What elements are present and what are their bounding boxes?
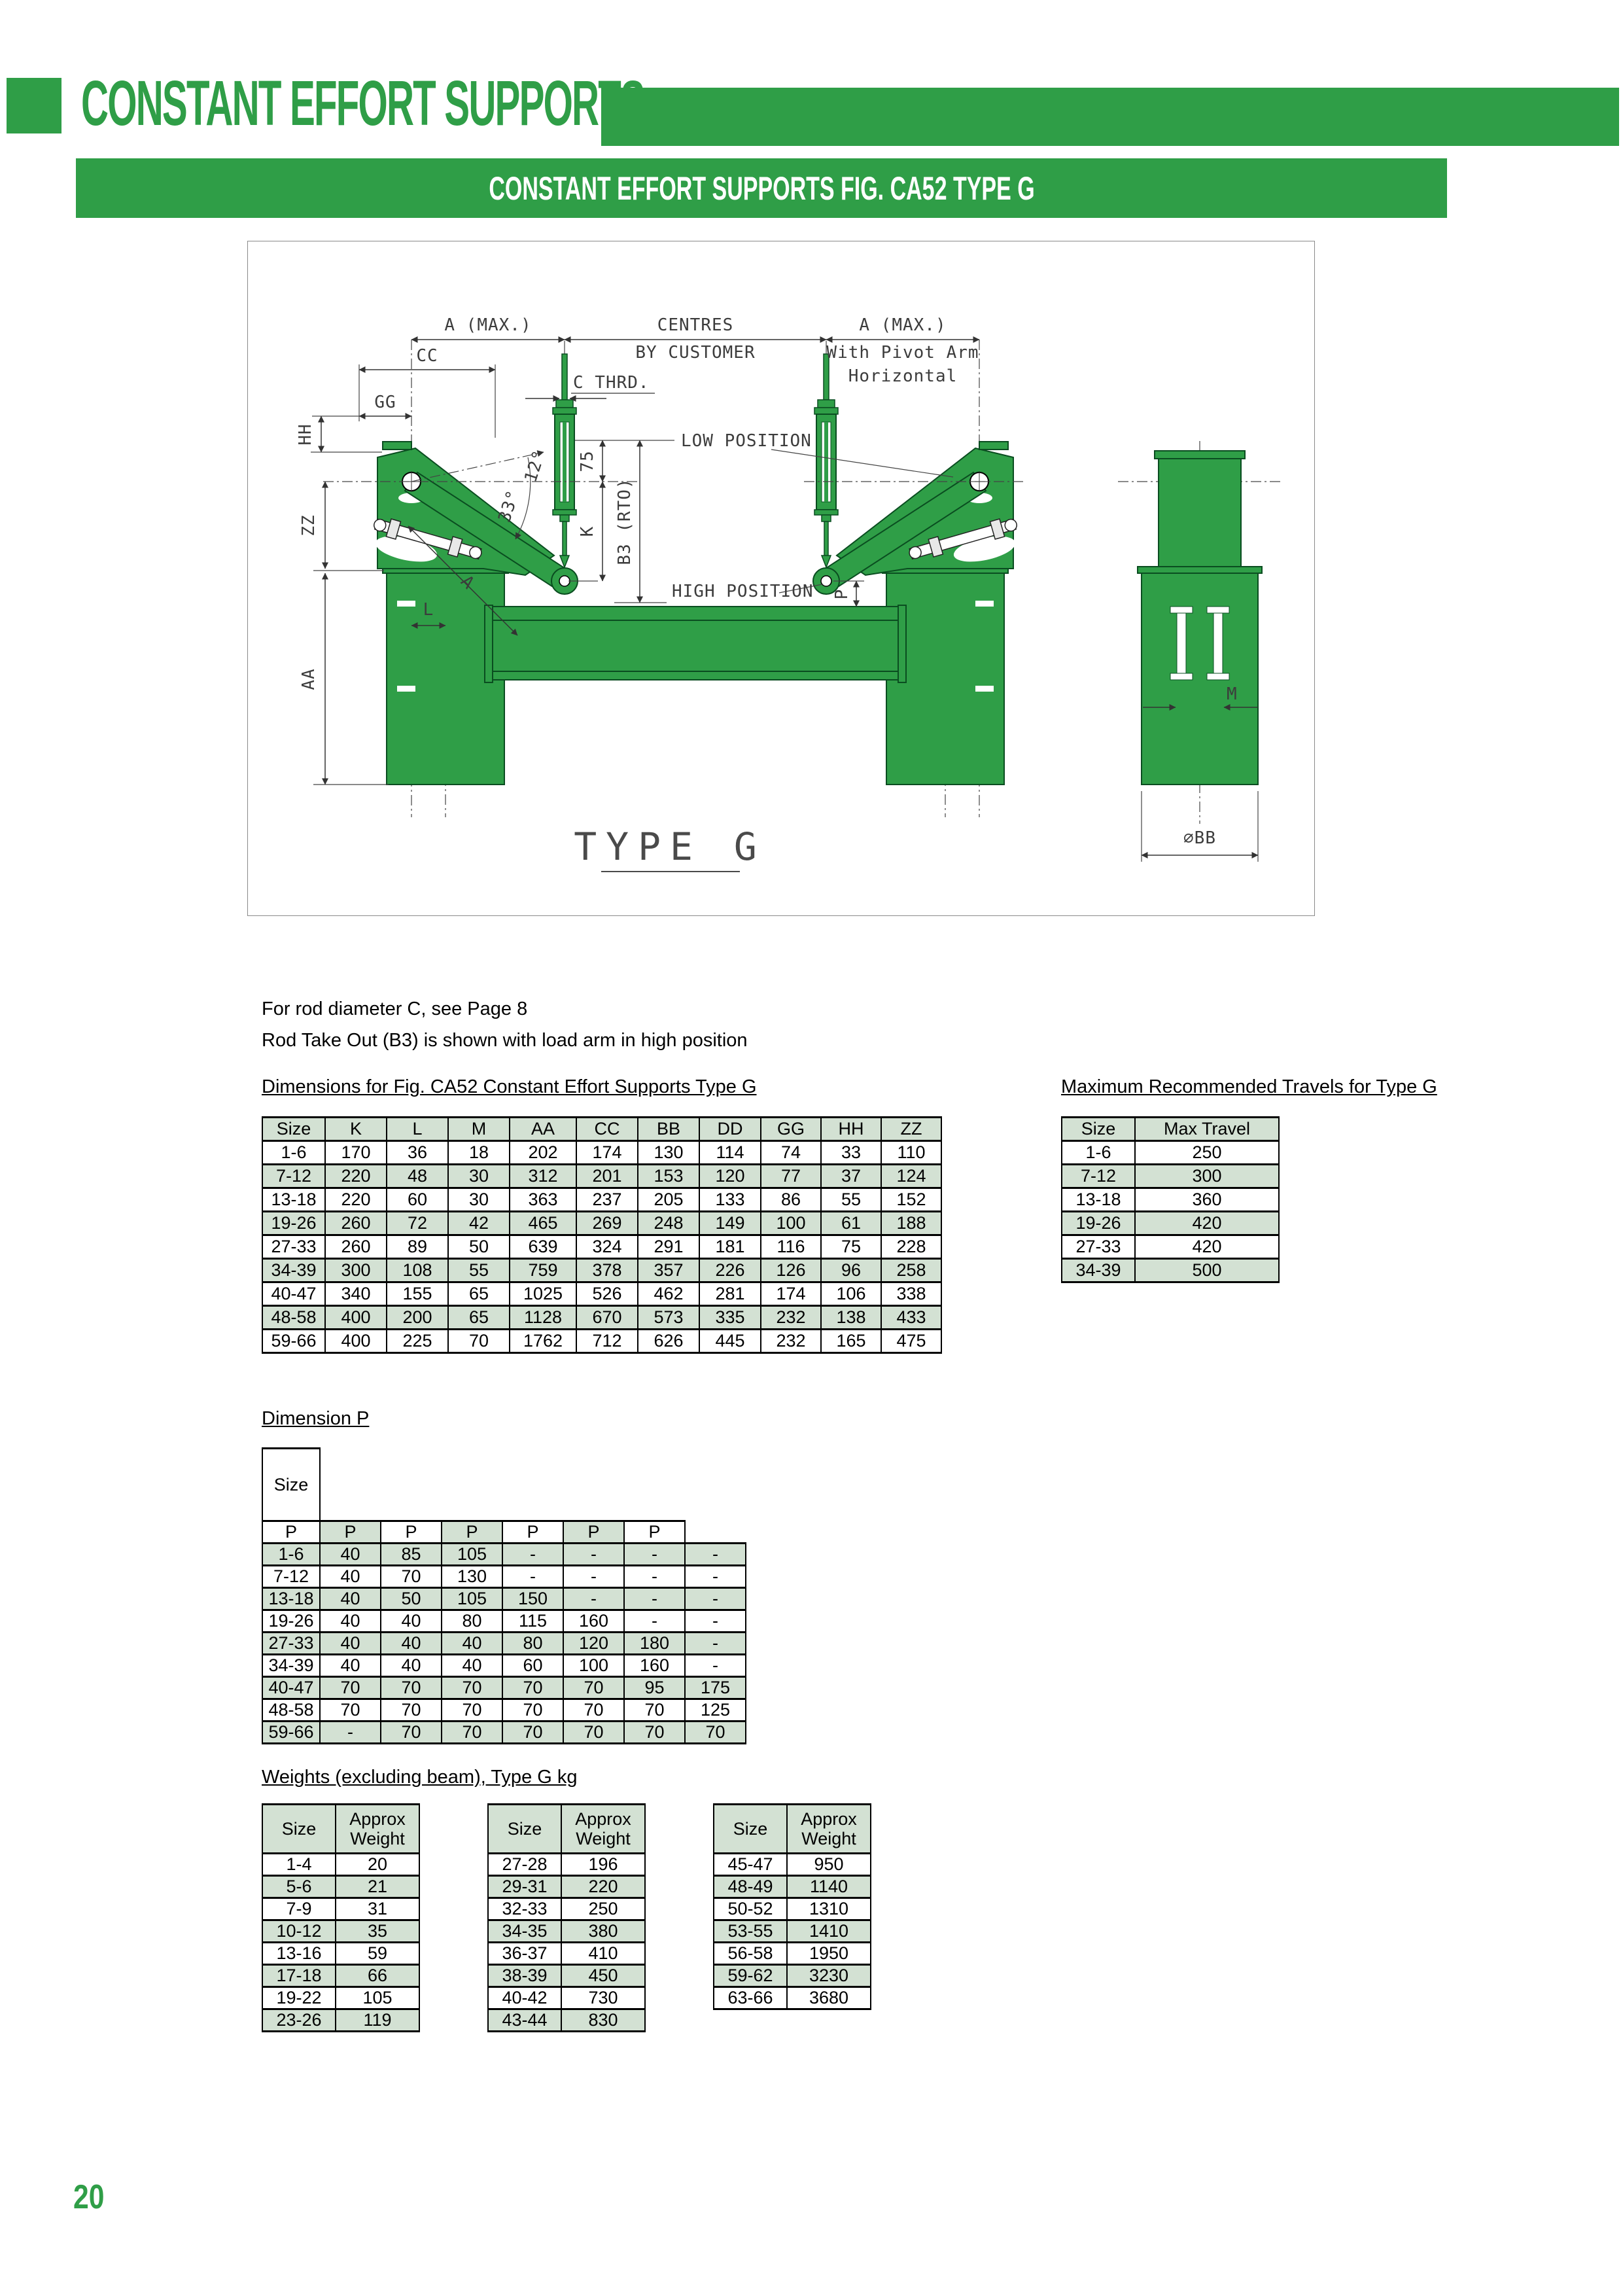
cell: 34-39 [1062, 1259, 1135, 1282]
cell: 65 [448, 1306, 510, 1330]
table-row: 34-393001085575937835722612696258 [262, 1259, 941, 1282]
catalog-page: CONSTANT EFFORT SUPPORTS CONSTANT EFFORT… [0, 0, 1623, 2296]
dim-label-pivot-arm-2: Horizontal [848, 366, 958, 386]
cell: 17-18 [262, 1965, 336, 1987]
cell: 40 [320, 1633, 381, 1655]
cell: - [624, 1544, 685, 1566]
cell: 950 [787, 1854, 871, 1876]
cell: 130 [442, 1566, 502, 1588]
column-header: GG [761, 1118, 821, 1141]
cell: 225 [387, 1330, 448, 1353]
beam-bottom-flange [493, 671, 898, 680]
cell: 202 [510, 1141, 576, 1165]
cell: 3680 [787, 1987, 871, 2009]
cell: 50 [448, 1235, 510, 1259]
cell: 61 [821, 1212, 881, 1235]
column-header: P [381, 1521, 442, 1544]
p-subheader-row: PPPPPPP [262, 1521, 746, 1544]
cell: - [502, 1544, 563, 1566]
dim-label-high-position: HIGH POSITION [672, 582, 814, 601]
dimension-p-heading: Dimension P [262, 1408, 369, 1430]
cell: 40 [320, 1588, 381, 1610]
weight-header: Approx Weight [336, 1805, 419, 1854]
cell: 33 [821, 1141, 881, 1165]
cell: 324 [576, 1235, 638, 1259]
lower-rod [563, 521, 567, 556]
cell: 433 [881, 1306, 941, 1330]
table-row: 1-64085105---- [262, 1544, 746, 1566]
table-row: 59-623230 [714, 1965, 871, 1987]
column-header: K [325, 1118, 387, 1141]
dimensions-table: SizeKLMAACCBBDDGGHHZZ 1-6170361820217413… [262, 1116, 942, 1354]
cell: 155 [387, 1282, 448, 1306]
cell: 248 [638, 1212, 699, 1235]
dim-label-bb: ∅BB [1183, 828, 1216, 848]
cell: 108 [387, 1259, 448, 1282]
cell: - [685, 1544, 746, 1566]
cell: 56-58 [714, 1943, 787, 1965]
size-header: Size [488, 1805, 561, 1854]
dim-label-c-thrd: C THRD. [573, 373, 650, 393]
cell: 19-26 [262, 1610, 320, 1633]
cell: 205 [638, 1188, 699, 1212]
cell: 85 [381, 1544, 442, 1566]
cell: 220 [325, 1188, 387, 1212]
cell: 40 [320, 1544, 381, 1566]
dim-label-low-position: LOW POSITION [681, 431, 812, 451]
cell: 48-49 [714, 1876, 787, 1898]
cell: 110 [881, 1141, 941, 1165]
cell: 72 [387, 1212, 448, 1235]
table-row: 34-35380 [488, 1920, 645, 1943]
cell: 96 [821, 1259, 881, 1282]
cell: 360 [1135, 1188, 1279, 1212]
cell: 114 [699, 1141, 761, 1165]
travels-table-heading: Maximum Recommended Travels for Type G [1061, 1076, 1437, 1098]
cell: 250 [561, 1898, 645, 1920]
cell: 40 [442, 1655, 502, 1677]
cell: 59-62 [714, 1965, 787, 1987]
dim-label-k: K [578, 526, 597, 537]
cell: 181 [699, 1235, 761, 1259]
cell: 226 [699, 1259, 761, 1282]
cell: 48-58 [262, 1306, 325, 1330]
cell: 291 [638, 1235, 699, 1259]
table-row: 27-33260895063932429118111675228 [262, 1235, 941, 1259]
cell: 40 [381, 1655, 442, 1677]
cell: - [502, 1566, 563, 1588]
cell: - [624, 1588, 685, 1610]
cell: 13-18 [262, 1588, 320, 1610]
cell: 27-33 [1062, 1235, 1135, 1259]
cell: 7-12 [262, 1566, 320, 1588]
cell: - [685, 1655, 746, 1677]
table-row: 17-1866 [262, 1965, 419, 1987]
cell: 380 [561, 1920, 645, 1943]
header-accent-bar [601, 88, 1619, 146]
column-header: AA [510, 1118, 576, 1141]
cell: 1950 [787, 1943, 871, 1965]
arm-pin-hole [559, 576, 570, 586]
cell: 100 [761, 1212, 821, 1235]
cell: 36 [387, 1141, 448, 1165]
cell: 340 [325, 1282, 387, 1306]
cell: 1-6 [1062, 1141, 1135, 1165]
cell: 21 [336, 1876, 419, 1898]
cell: 70 [381, 1699, 442, 1722]
cell: 200 [387, 1306, 448, 1330]
cell: 80 [502, 1633, 563, 1655]
table-row: 13-184050105150--- [262, 1588, 746, 1610]
column-header: Size [1062, 1118, 1135, 1141]
side-base-column [1142, 573, 1258, 785]
cell: 45-47 [714, 1854, 787, 1876]
column-header: M [448, 1118, 510, 1141]
cell: 77 [761, 1165, 821, 1188]
cell: 66 [336, 1965, 419, 1987]
weights-table-2: Size Approx Weight 27-2819629-3122032-33… [487, 1803, 646, 2032]
cell: 759 [510, 1259, 576, 1282]
size-header: Size [262, 1449, 320, 1521]
cell: 237 [576, 1188, 638, 1212]
cell: 220 [561, 1876, 645, 1898]
cell: 29-31 [488, 1876, 561, 1898]
support-beam [485, 605, 906, 682]
cell: 420 [1135, 1235, 1279, 1259]
table-row: 23-26119 [262, 2009, 419, 2032]
cell: 363 [510, 1188, 576, 1212]
cell: - [685, 1588, 746, 1610]
cell: 70 [442, 1677, 502, 1699]
table-row: 36-37410 [488, 1943, 645, 1965]
dim-label-cc: CC [416, 346, 438, 366]
cell: - [685, 1633, 746, 1655]
cell: 70 [381, 1677, 442, 1699]
technical-drawing: A (MAX.) CENTRES BY CUSTOMER A (MAX.) Wi… [248, 241, 1314, 915]
cell: 1-6 [262, 1141, 325, 1165]
cell: 116 [761, 1235, 821, 1259]
cell: 125 [685, 1699, 746, 1722]
dim-label-hh: HH [296, 423, 315, 445]
cell: 269 [576, 1212, 638, 1235]
cell: 80 [442, 1610, 502, 1633]
cell: 30 [448, 1188, 510, 1212]
column-header: P [502, 1521, 563, 1544]
column-header: BB [638, 1118, 699, 1141]
cell: 55 [448, 1259, 510, 1282]
cell: 639 [510, 1235, 576, 1259]
cell: 400 [325, 1330, 387, 1353]
cell: 31 [336, 1898, 419, 1920]
cell: 300 [325, 1259, 387, 1282]
cell: 43-44 [488, 2009, 561, 2032]
dim-label-centres: CENTRES [657, 315, 734, 335]
travels-table: SizeMax Travel 1-62507-1230013-1836019-2… [1061, 1116, 1280, 1283]
cell: 70 [502, 1699, 563, 1722]
cell: 40 [442, 1633, 502, 1655]
table-row: 53-551410 [714, 1920, 871, 1943]
cell: 89 [387, 1235, 448, 1259]
table-row: 1-617036182021741301147433110 [262, 1141, 941, 1165]
cell: 152 [881, 1188, 941, 1212]
cell: 378 [576, 1259, 638, 1282]
travel-header-row: Size [262, 1449, 746, 1521]
cell: 1128 [510, 1306, 576, 1330]
cell: 40 [320, 1566, 381, 1588]
dimensions-table-heading: Dimensions for Fig. CA52 Constant Effort… [262, 1076, 757, 1098]
technical-drawing-frame: A (MAX.) CENTRES BY CUSTOMER A (MAX.) Wi… [247, 241, 1315, 916]
weight-header: Approx Weight [561, 1805, 645, 1854]
cell: 60 [387, 1188, 448, 1212]
table-row: 29-31220 [488, 1876, 645, 1898]
cell: 105 [442, 1544, 502, 1566]
cell: 160 [624, 1655, 685, 1677]
table-row: 27-28196 [488, 1854, 645, 1876]
table-row: 19-26404080115160-- [262, 1610, 746, 1633]
cell: 20 [336, 1854, 419, 1876]
header-accent-square [7, 78, 61, 133]
dim-label-m: M [1227, 684, 1238, 704]
cell: 70 [624, 1722, 685, 1744]
cell: 37 [821, 1165, 881, 1188]
cell: 1410 [787, 1920, 871, 1943]
table-row: 27-33420 [1062, 1235, 1279, 1259]
cell: 100 [563, 1655, 624, 1677]
table-row: 48-58400200651128670573335232138433 [262, 1306, 941, 1330]
column-header: P [442, 1521, 502, 1544]
cell: 13-16 [262, 1943, 336, 1965]
cell: 34-35 [488, 1920, 561, 1943]
section-banner: CONSTANT EFFORT SUPPORTS FIG. CA52 TYPE … [76, 158, 1447, 218]
cell: 53-55 [714, 1920, 787, 1943]
cell: 1762 [510, 1330, 576, 1353]
column-header: P [262, 1521, 320, 1544]
cell: 60 [502, 1655, 563, 1677]
table-row: 59-66-707070707070 [262, 1722, 746, 1744]
cell: 153 [638, 1165, 699, 1188]
cell: 32-33 [488, 1898, 561, 1920]
table-row: 13-18360 [1062, 1188, 1279, 1212]
cell: 30 [448, 1165, 510, 1188]
cell: 138 [821, 1306, 881, 1330]
cell: - [563, 1544, 624, 1566]
cell: 50 [381, 1588, 442, 1610]
cell: 13-18 [1062, 1188, 1135, 1212]
cell: 338 [881, 1282, 941, 1306]
cell: 526 [576, 1282, 638, 1306]
column-header: Size [262, 1118, 325, 1141]
table-row: 19-26260724246526924814910061188 [262, 1212, 941, 1235]
cell: 40 [320, 1610, 381, 1633]
cell: 55 [821, 1188, 881, 1212]
dim-label-12deg: 12° [521, 448, 550, 485]
cell: 35 [336, 1920, 419, 1943]
cell: 70 [563, 1722, 624, 1744]
bracket-top-tab [383, 442, 411, 450]
cell: 174 [761, 1282, 821, 1306]
cell: 133 [699, 1188, 761, 1212]
cell: 59 [336, 1943, 419, 1965]
cell: - [563, 1566, 624, 1588]
side-upper-column [1159, 459, 1241, 567]
table-row: 5-621 [262, 1876, 419, 1898]
cell: 70 [502, 1677, 563, 1699]
cell: 232 [761, 1330, 821, 1353]
cell: 74 [761, 1141, 821, 1165]
cell: 250 [1135, 1141, 1279, 1165]
column-header: Max Travel [1135, 1118, 1279, 1141]
table-row: 34-39500 [1062, 1259, 1279, 1282]
cell: 48-58 [262, 1699, 320, 1722]
cell: 730 [561, 1987, 645, 2009]
cell: 196 [561, 1854, 645, 1876]
cell: 86 [761, 1188, 821, 1212]
cell: 19-26 [1062, 1212, 1135, 1235]
cell: 75 [821, 1235, 881, 1259]
header-row: Size Approx Weight [488, 1805, 645, 1854]
cell: 70 [320, 1677, 381, 1699]
table-row: 50-521310 [714, 1898, 871, 1920]
cell: 18 [448, 1141, 510, 1165]
table-row: 63-663680 [714, 1987, 871, 2009]
table-row: 40-47707070707095175 [262, 1677, 746, 1699]
cell: - [624, 1610, 685, 1633]
cell: 7-12 [262, 1165, 325, 1188]
table-row: 7-931 [262, 1898, 419, 1920]
cell: 626 [638, 1330, 699, 1353]
dim-label-pivot-arm-1: With Pivot Arm [826, 343, 979, 362]
dim-label-by-customer: BY CUSTOMER [635, 343, 755, 362]
cell: 13-18 [262, 1188, 325, 1212]
cell: 40-47 [262, 1677, 320, 1699]
table-row: 19-22105 [262, 1987, 419, 2009]
cell: 465 [510, 1212, 576, 1235]
cell: - [563, 1588, 624, 1610]
cell: 7-9 [262, 1898, 336, 1920]
cell: 70 [448, 1330, 510, 1353]
cell: 445 [699, 1330, 761, 1353]
dim-label-aa: AA [299, 668, 319, 690]
weights-table-1: Size Approx Weight 1-4205-6217-93110-123… [262, 1803, 420, 2032]
cell: - [685, 1610, 746, 1633]
cell: 149 [699, 1212, 761, 1235]
cell: 119 [336, 2009, 419, 2032]
table-row: 34-3940404060100160- [262, 1655, 746, 1677]
page-number: 20 [73, 2178, 104, 2217]
cell: 420 [1135, 1212, 1279, 1235]
cell: 712 [576, 1330, 638, 1353]
cell: 170 [325, 1141, 387, 1165]
cell: 228 [881, 1235, 941, 1259]
cell: 70 [320, 1699, 381, 1722]
header-row: Size Approx Weight [714, 1805, 871, 1854]
cell: 50-52 [714, 1898, 787, 1920]
table-row: 48-491140 [714, 1876, 871, 1898]
column-notch [397, 686, 415, 692]
cell: 410 [561, 1943, 645, 1965]
cell: 400 [325, 1306, 387, 1330]
table-row: 10-1235 [262, 1920, 419, 1943]
drawing-caption: TYPE G [574, 824, 766, 869]
cell: 180 [624, 1633, 685, 1655]
cell: 5-6 [262, 1876, 336, 1898]
cell: 260 [325, 1235, 387, 1259]
cell: 70 [563, 1699, 624, 1722]
weight-header: Approx Weight [787, 1805, 871, 1854]
cell: 59-66 [262, 1722, 320, 1744]
table-row: 1-420 [262, 1854, 419, 1876]
cell: 201 [576, 1165, 638, 1188]
cell: 40 [381, 1633, 442, 1655]
cell: 40-47 [262, 1282, 325, 1306]
cell: 3230 [787, 1965, 871, 1987]
cell: 830 [561, 2009, 645, 2032]
cell: 27-33 [262, 1235, 325, 1259]
dim-label-a-max-left: A (MAX.) [444, 315, 531, 335]
cell: 40-42 [488, 1987, 561, 2009]
dim-label-p: P [832, 589, 852, 600]
cell: 42 [448, 1212, 510, 1235]
cell: 40 [381, 1610, 442, 1633]
table-row: 32-33250 [488, 1898, 645, 1920]
beam-web [493, 620, 898, 671]
cell: 120 [699, 1165, 761, 1188]
table-row: 19-26420 [1062, 1212, 1279, 1235]
table-row: 13-1822060303632372051338655152 [262, 1188, 941, 1212]
table-row: 7-1222048303122011531207737124 [262, 1165, 941, 1188]
dimension-p-table: Size PPPPPPP 1-64085105----7-124070130--… [262, 1447, 746, 1744]
column-header: DD [699, 1118, 761, 1141]
cell: 260 [325, 1212, 387, 1235]
header-row: Size Approx Weight [262, 1805, 419, 1854]
cell: 670 [576, 1306, 638, 1330]
header-row: SizeKLMAACCBBDDGGHHZZ [262, 1118, 941, 1141]
weights-table-3: Size Approx Weight 45-4795048-49114050-5… [713, 1803, 871, 2010]
rod-nut [556, 400, 573, 408]
table-row: 13-1659 [262, 1943, 419, 1965]
table-row: 38-39450 [488, 1965, 645, 1987]
cell: 27-33 [262, 1633, 320, 1655]
dim-label-75: 75 [578, 450, 597, 472]
cell: 165 [821, 1330, 881, 1353]
cell: 120 [563, 1633, 624, 1655]
cell: 160 [563, 1610, 624, 1633]
beam-top-flange [493, 607, 898, 620]
cell: 48 [387, 1165, 448, 1188]
cell: 38-39 [488, 1965, 561, 1987]
cell: 36-37 [488, 1943, 561, 1965]
column-header: CC [576, 1118, 638, 1141]
column-header: L [387, 1118, 448, 1141]
cell: 115 [502, 1610, 563, 1633]
table-row: 1-6250 [1062, 1141, 1279, 1165]
cell: - [685, 1566, 746, 1588]
cell: 126 [761, 1259, 821, 1282]
cell: 312 [510, 1165, 576, 1188]
cell: 19-22 [262, 1987, 336, 2009]
cell: 40 [320, 1655, 381, 1677]
cell: 70 [442, 1722, 502, 1744]
cell: 70 [624, 1699, 685, 1722]
table-row: 43-44830 [488, 2009, 645, 2032]
page-title: CONSTANT EFFORT SUPPORTS [81, 71, 644, 136]
cell: 1-4 [262, 1854, 336, 1876]
table-row: 48-58707070707070125 [262, 1699, 746, 1722]
section-banner-title: CONSTANT EFFORT SUPPORTS FIG. CA52 TYPE … [489, 169, 1034, 207]
cell: 105 [442, 1588, 502, 1610]
column-header: HH [821, 1118, 881, 1141]
cell: 1310 [787, 1898, 871, 1920]
